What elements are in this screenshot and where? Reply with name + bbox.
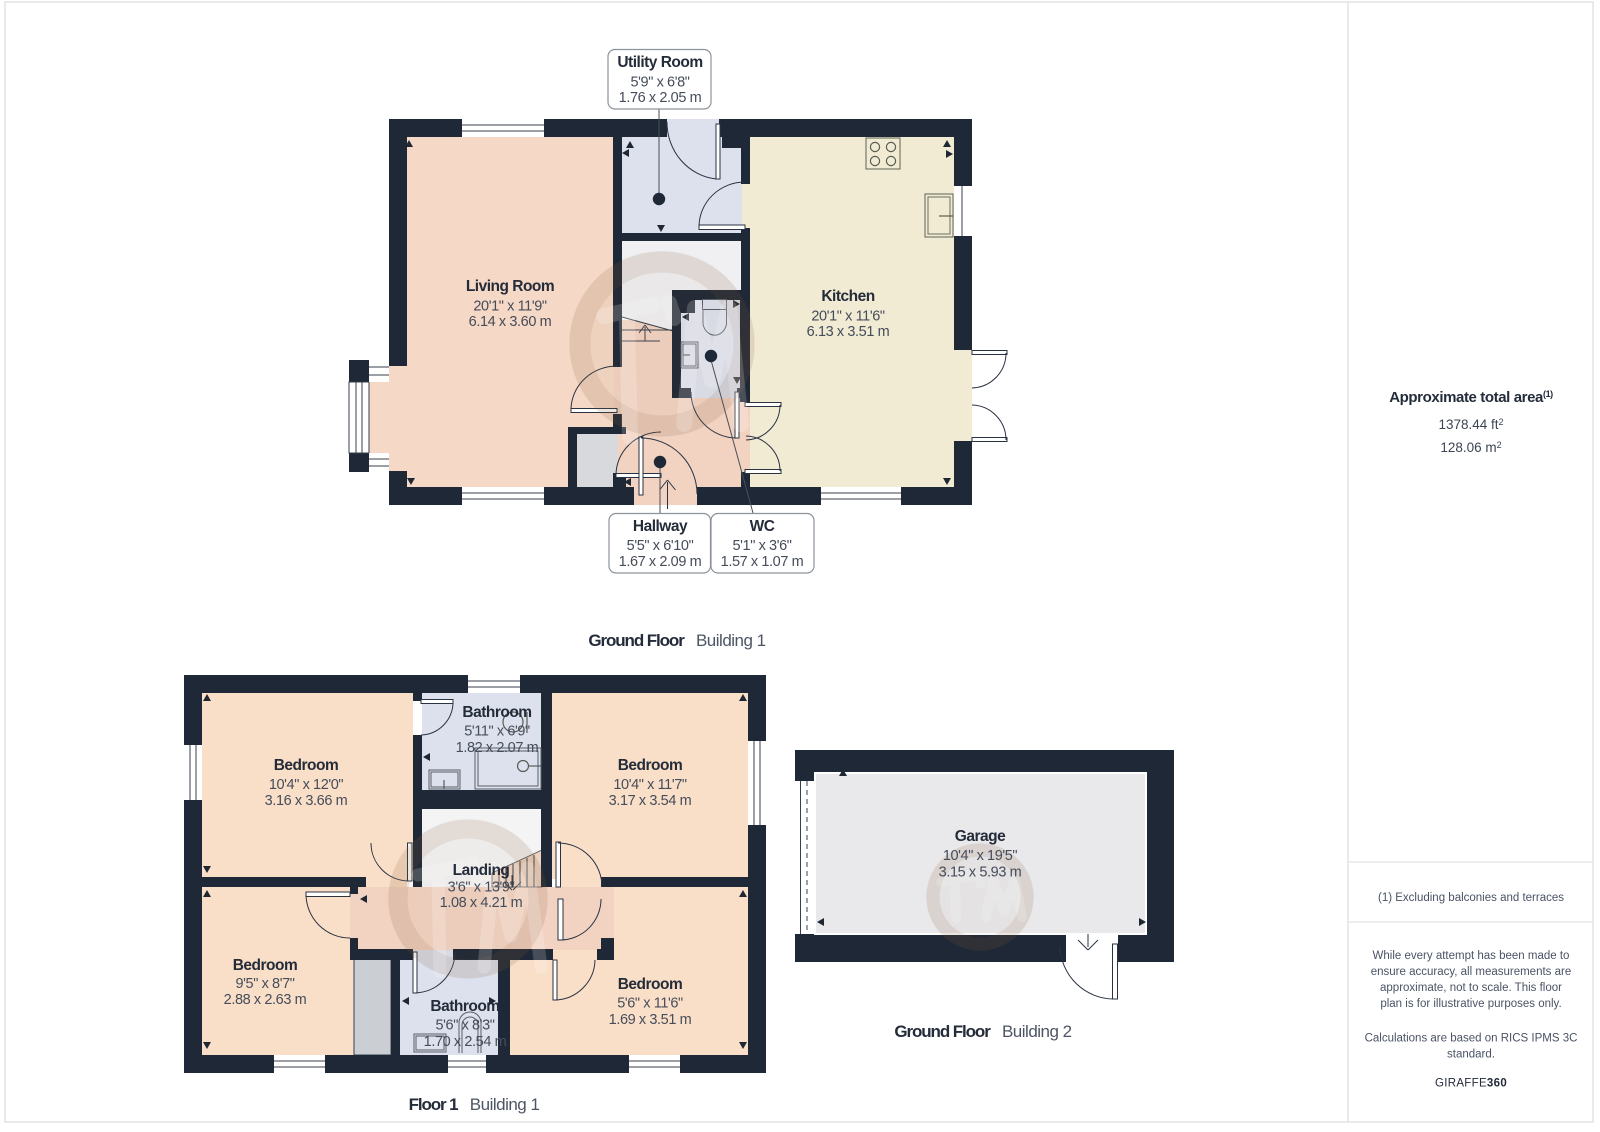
svg-text:Living Room: Living Room xyxy=(466,278,554,295)
svg-text:GIRAFFE360: GIRAFFE360 xyxy=(1435,1078,1507,1090)
svg-text:ensure accuracy, all measureme: ensure accuracy, all measurements are xyxy=(1371,966,1572,978)
svg-text:1.08 x 4.21 m: 1.08 x 4.21 m xyxy=(440,895,523,911)
svg-text:Ground Floor Building 2: Ground Floor Building 2 xyxy=(894,1022,1071,1041)
svg-text:Landing: Landing xyxy=(453,862,510,879)
svg-text:3.17 x 3.54 m: 3.17 x 3.54 m xyxy=(609,793,692,809)
svg-text:1.82 x 2.07 m: 1.82 x 2.07 m xyxy=(456,740,539,756)
svg-text:10'4" x 11'7": 10'4" x 11'7" xyxy=(613,777,687,793)
svg-text:Utility Room: Utility Room xyxy=(617,54,702,71)
svg-text:128.06 m2: 128.06 m2 xyxy=(1440,440,1501,455)
svg-text:Bedroom: Bedroom xyxy=(274,757,339,774)
svg-text:6.14 x 3.60 m: 6.14 x 3.60 m xyxy=(469,314,552,330)
svg-text:1.70 x 2.54 m: 1.70 x 2.54 m xyxy=(424,1034,507,1050)
svg-text:Bedroom: Bedroom xyxy=(233,957,298,974)
svg-text:10'4" x 19'5": 10'4" x 19'5" xyxy=(943,848,1018,864)
svg-text:Bedroom: Bedroom xyxy=(618,757,683,774)
svg-text:plan is for illustrative purpo: plan is for illustrative purposes only. xyxy=(1380,998,1561,1010)
svg-text:Kitchen: Kitchen xyxy=(821,288,874,305)
svg-text:standard.: standard. xyxy=(1447,1049,1495,1061)
svg-text:1.69 x 3.51 m: 1.69 x 3.51 m xyxy=(609,1012,692,1028)
svg-text:3.16 x 3.66 m: 3.16 x 3.66 m xyxy=(265,793,348,809)
svg-text:20'1" x 11'9": 20'1" x 11'9" xyxy=(473,299,547,315)
svg-text:Bathroom: Bathroom xyxy=(462,704,531,721)
svg-text:1.57 x 1.07 m: 1.57 x 1.07 m xyxy=(721,554,804,570)
svg-text:Calculations are based on RICS: Calculations are based on RICS IPMS 3C xyxy=(1365,1033,1578,1045)
svg-text:WC: WC xyxy=(750,518,775,535)
svg-text:3.15 x 5.93 m: 3.15 x 5.93 m xyxy=(939,865,1022,881)
svg-text:6.13 x 3.51 m: 6.13 x 3.51 m xyxy=(807,324,890,340)
svg-text:(1) Excluding balconies and te: (1) Excluding balconies and terraces xyxy=(1378,892,1564,904)
svg-text:5'11" x 6'9": 5'11" x 6'9" xyxy=(464,724,530,740)
svg-text:Approximate total area(1): Approximate total area(1) xyxy=(1389,389,1553,406)
svg-text:Bathroom: Bathroom xyxy=(430,998,499,1015)
svg-text:1378.44 ft2: 1378.44 ft2 xyxy=(1438,417,1503,432)
svg-text:9'5" x 8'7": 9'5" x 8'7" xyxy=(236,976,295,992)
svg-text:5'6" x 8'3": 5'6" x 8'3" xyxy=(436,1018,495,1034)
svg-text:10'4" x 12'0": 10'4" x 12'0" xyxy=(269,777,344,793)
svg-text:5'6" x 11'6": 5'6" x 11'6" xyxy=(617,996,683,1012)
svg-text:While every attempt has been m: While every attempt has been made to xyxy=(1373,950,1570,962)
svg-text:Bedroom: Bedroom xyxy=(618,976,683,993)
svg-text:Garage: Garage xyxy=(955,828,1006,845)
svg-text:Hallway: Hallway xyxy=(633,518,688,535)
svg-text:Floor 1 Building 1: Floor 1 Building 1 xyxy=(409,1095,540,1114)
svg-text:1.76 x 2.05 m: 1.76 x 2.05 m xyxy=(619,90,702,106)
svg-text:3'6" x 13'9": 3'6" x 13'9" xyxy=(448,880,515,896)
svg-text:20'1" x 11'6": 20'1" x 11'6" xyxy=(811,309,885,325)
svg-text:approximate, not to scale. Thi: approximate, not to scale. This floor xyxy=(1380,982,1562,994)
svg-text:1.67 x 2.09 m: 1.67 x 2.09 m xyxy=(619,554,702,570)
svg-text:5'1" x 3'6": 5'1" x 3'6" xyxy=(733,538,792,554)
svg-text:5'5" x 6'10": 5'5" x 6'10" xyxy=(627,538,694,554)
svg-text:5'9" x 6'8": 5'9" x 6'8" xyxy=(631,75,690,91)
svg-text:Ground Floor Building 1: Ground Floor Building 1 xyxy=(588,631,765,650)
svg-text:2.88 x 2.63 m: 2.88 x 2.63 m xyxy=(224,992,307,1008)
